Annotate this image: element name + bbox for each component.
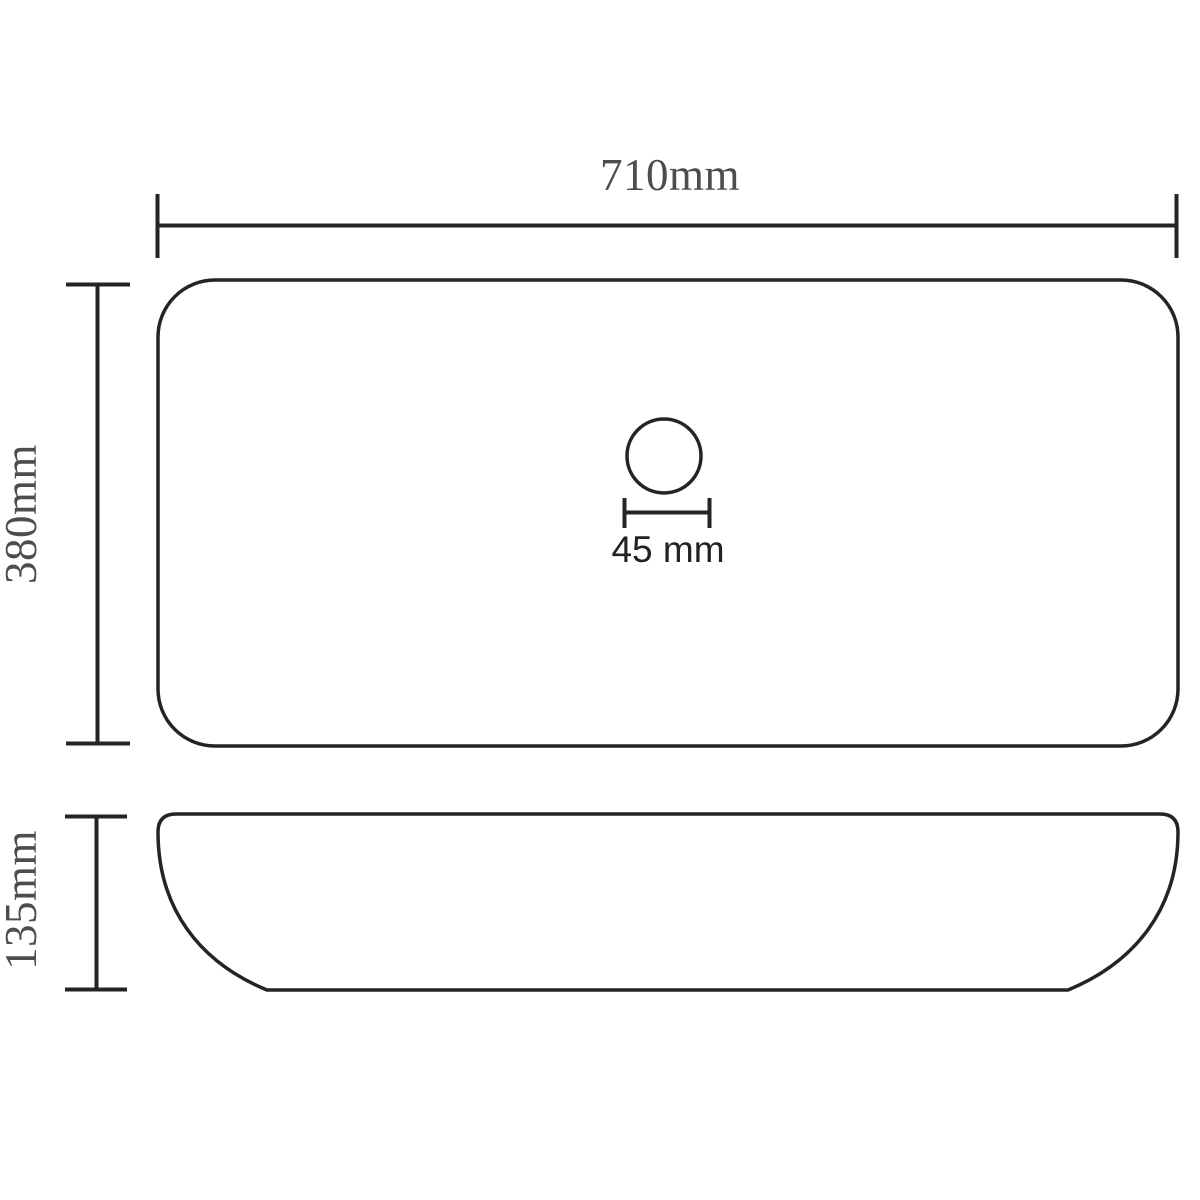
washbasin-dimension-drawing: 710mm 380mm 135mm 45 mm <box>0 0 1200 1200</box>
width-dimension-line <box>157 194 1177 258</box>
basin-side-view-outline <box>158 814 1178 990</box>
dimension-lines <box>65 194 1177 990</box>
drawing-canvas: 710mm 380mm 135mm 45 mm <box>0 0 1200 1200</box>
basin-outlines <box>158 280 1178 990</box>
width-dimension-label: 710mm <box>600 150 740 200</box>
drain-label-group: 45 mm <box>611 529 724 570</box>
depth-dimension-label: 380mm <box>0 444 46 584</box>
depth-dimension-line <box>66 284 130 744</box>
drain-hole-circle <box>627 419 701 493</box>
drain-dimension-label: 45 mm <box>611 529 724 570</box>
drain-dimension-line <box>624 498 710 528</box>
height-dimension-line <box>65 816 127 990</box>
height-dimension-label: 135mm <box>0 830 46 970</box>
